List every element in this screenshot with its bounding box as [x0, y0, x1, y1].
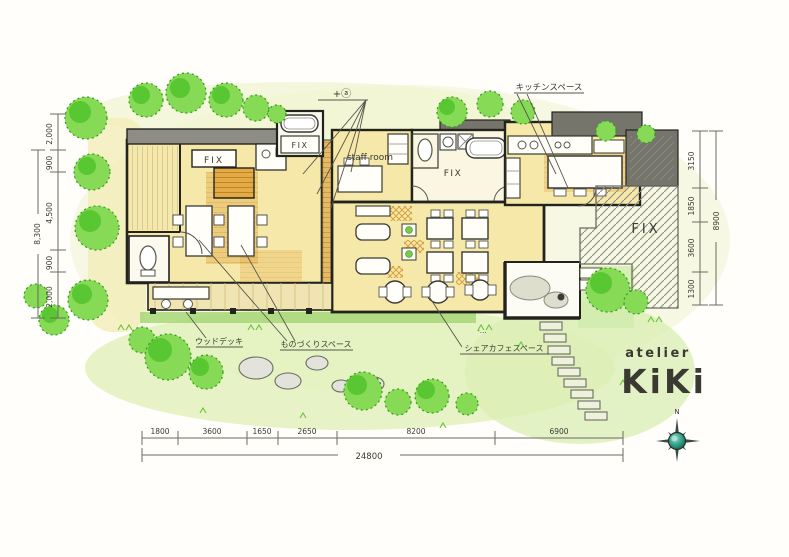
share-cafe-space-label: シェアカフェスペース — [464, 344, 543, 353]
logo-sub: atelier — [625, 346, 690, 361]
dim-bottom-2: 1650 — [252, 427, 271, 436]
dim-left-3: 900 — [45, 256, 54, 271]
dash-dots-mark: ‐… — [477, 327, 487, 335]
dim-right-total: 8900 — [712, 211, 721, 230]
floor-plan-page: FIX FIX staff room FIX — [0, 0, 789, 557]
dim-left-2: 4,500 — [45, 202, 54, 224]
dim-bottom-0: 1800 — [150, 427, 169, 436]
dimension-labels-left: 2,000 900 4,500 900 2,000 8,300 — [33, 123, 54, 308]
staff-room: staff room — [332, 130, 412, 202]
dim-right-0: 3150 — [687, 151, 696, 170]
water-area: FIX — [412, 120, 510, 202]
fix-label-water-area: FIX — [444, 169, 463, 179]
dim-bottom-5: 6900 — [549, 427, 568, 436]
dimension-labels-bottom: 1800 3600 1650 2650 8200 6900 24800 — [150, 427, 568, 462]
dim-left-0: 2,000 — [45, 123, 54, 145]
dim-right-1: 1850 — [687, 196, 696, 215]
dim-bottom-1: 3600 — [202, 427, 221, 436]
dim-left-total: 8,300 — [33, 223, 42, 245]
dim-left-1: 900 — [45, 156, 54, 171]
compass-north-label: N — [674, 408, 679, 416]
fix-label-bath-pod: FIX — [292, 141, 309, 150]
dim-left-4: 2,000 — [45, 286, 54, 308]
dim-bottom-4: 8200 — [406, 427, 425, 436]
fix-label-left-wing: FIX — [204, 156, 224, 166]
fix-label-terrace: FIX — [631, 222, 660, 237]
logo-main: KiKi — [621, 362, 707, 401]
plan-svg: FIX FIX staff room FIX — [0, 0, 789, 557]
wood-deck-label: ウッドデッキ — [195, 336, 243, 346]
kitchen-space-label: キッチンスペース — [516, 83, 583, 93]
plus-a-mark: +ⓐ — [333, 88, 351, 100]
craft-space-label: ものづくりスペース — [280, 340, 351, 349]
atelier-kiki-logo: atelier KiKi — [621, 346, 707, 401]
dim-right-3: 1300 — [687, 279, 696, 298]
dim-right-2: 3600 — [687, 238, 696, 257]
dim-bottom-total: 24800 — [355, 452, 382, 462]
dim-bottom-3: 2650 — [297, 427, 316, 436]
